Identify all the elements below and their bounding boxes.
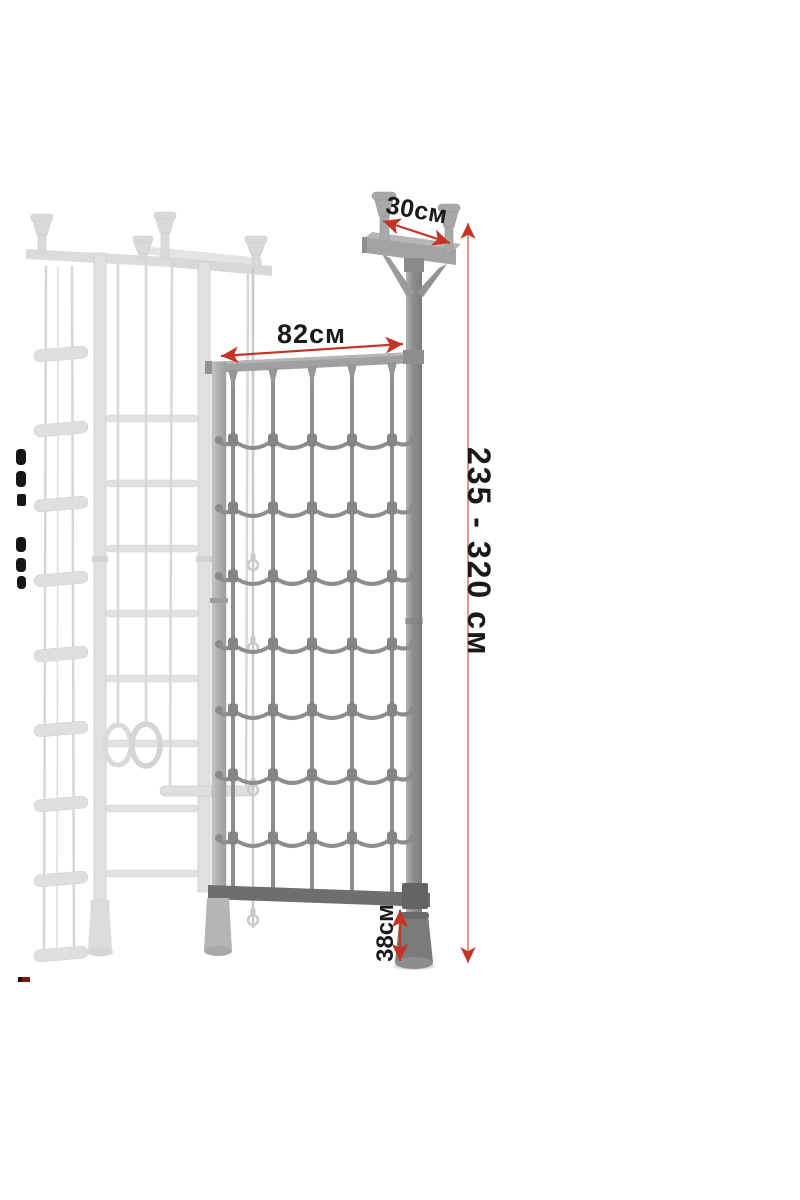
dimension-label-82cm: 82см bbox=[277, 321, 346, 348]
left-pole-foot bbox=[204, 898, 232, 956]
upright-joint-collar bbox=[92, 556, 108, 562]
ladder-foot-flange bbox=[87, 948, 113, 957]
climbing-net-unit bbox=[204, 192, 461, 970]
clipped-edge-fragments bbox=[16, 449, 26, 589]
upright-joint-collar bbox=[196, 556, 212, 562]
ladder-upright-left bbox=[94, 253, 106, 900]
diagram-illustration bbox=[0, 0, 800, 1200]
faded-wall-bars-unit bbox=[26, 212, 272, 962]
dimension-label-38cm: 38см bbox=[374, 895, 398, 971]
ladder-foot bbox=[88, 900, 112, 951]
dimension-label-height-range: 235 - 320 см bbox=[463, 447, 495, 657]
rope-ladder bbox=[34, 266, 89, 962]
ladder-upright-right bbox=[198, 262, 210, 892]
gym-rings bbox=[105, 258, 160, 766]
dimension-diagram-canvas: 30см 82см 235 - 320 см 38см bbox=[0, 0, 800, 1200]
climbing-net-ropes bbox=[215, 362, 417, 892]
ladder-rungs bbox=[106, 415, 198, 877]
corner-artifact bbox=[18, 977, 30, 982]
